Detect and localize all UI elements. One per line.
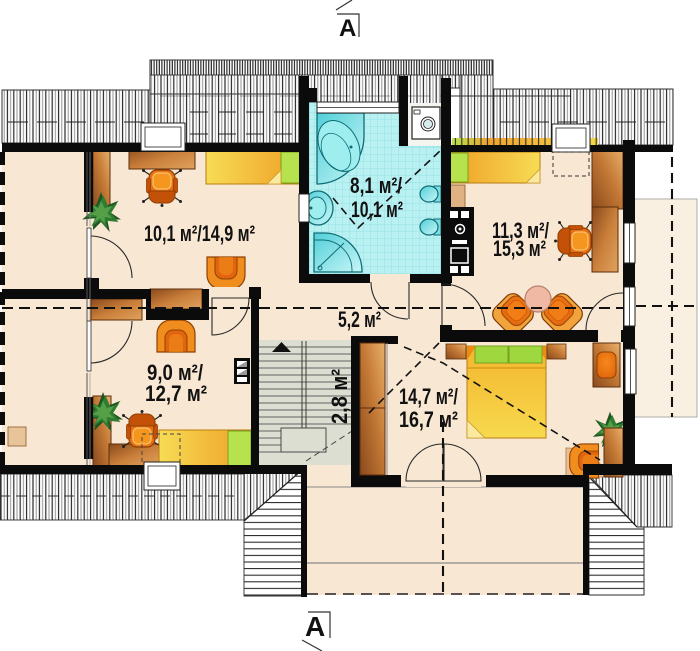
svg-text:14,7 м²/: 14,7 м²/ xyxy=(399,384,459,409)
svg-text:A: A xyxy=(339,15,356,42)
svg-text:15,3 м²: 15,3 м² xyxy=(493,236,546,261)
svg-text:2,8 м²: 2,8 м² xyxy=(327,369,352,424)
svg-text:12,7 м²: 12,7 м² xyxy=(145,381,207,406)
svg-text:10,1 м²/14,9 м²: 10,1 м²/14,9 м² xyxy=(144,221,255,246)
svg-text:8,1 м²/: 8,1 м²/ xyxy=(350,173,403,198)
svg-text:10,1 м²: 10,1 м² xyxy=(351,197,403,222)
svg-text:5,2 м²: 5,2 м² xyxy=(338,307,381,332)
svg-text:A: A xyxy=(305,611,325,642)
svg-text:16,7 м²: 16,7 м² xyxy=(399,407,458,432)
